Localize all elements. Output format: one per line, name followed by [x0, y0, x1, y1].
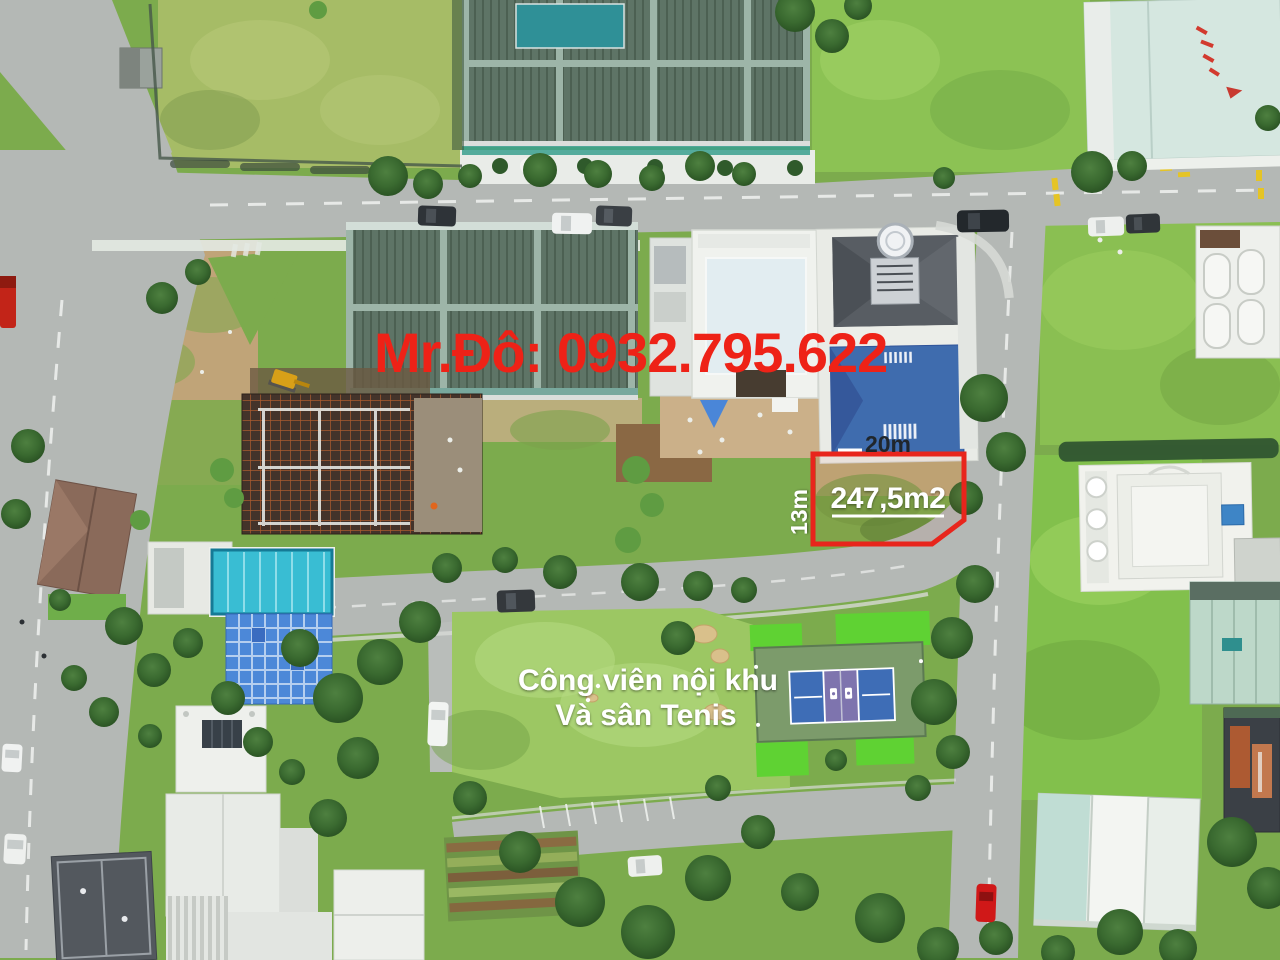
ac-unit: [249, 711, 255, 717]
warehouse-north: [452, 0, 810, 176]
tree-icon: [138, 724, 162, 748]
ac-box: [1222, 638, 1242, 651]
car-dark: [418, 205, 457, 226]
tree-icon: [905, 775, 931, 801]
dark-house: [51, 851, 157, 960]
grass-texture: [930, 70, 1070, 150]
ac-unit: [183, 711, 189, 717]
bush-icon: [224, 488, 244, 508]
worker-dot: [431, 503, 438, 510]
tree-icon: [368, 156, 408, 196]
tree-icon: [279, 759, 305, 785]
tree-icon: [933, 167, 955, 189]
plot-area-label: 247,5m2: [831, 482, 946, 515]
car-white: [1, 743, 22, 772]
tree-icon: [137, 653, 171, 687]
annex: [1234, 538, 1280, 585]
car-white: [1088, 216, 1125, 236]
tree-icon: [931, 617, 973, 659]
tree-icon: [61, 665, 87, 691]
tree-icon: [11, 429, 45, 463]
white-panel: [1088, 795, 1149, 929]
tree-icon: [543, 555, 577, 589]
grass-texture: [160, 90, 260, 150]
grass-texture: [190, 20, 330, 100]
tree-icon: [313, 673, 363, 723]
park-label-line1: Công viên nội khu: [518, 664, 778, 697]
tree-icon: [337, 737, 379, 779]
tree-icon: [1097, 909, 1143, 955]
wall-art: [1230, 726, 1250, 788]
turret-dome: [1087, 509, 1107, 529]
agent-watermark: Mr.Đô: 0932.795.622: [374, 321, 887, 384]
tree-icon: [1255, 105, 1280, 131]
roof-strip: [1224, 708, 1280, 718]
dark-section: [1200, 230, 1240, 248]
roof-inner: [1131, 485, 1208, 566]
tree-icon: [979, 921, 1013, 955]
turf-pad: [756, 741, 809, 777]
sidewalk-warehouse: [460, 150, 815, 184]
hedge-row: [1058, 438, 1278, 462]
tree-icon: [499, 831, 541, 873]
arched-building: [1196, 226, 1280, 358]
warehouse-roof: [462, 0, 810, 143]
shed-roof-half: [120, 48, 140, 88]
house-wing: [280, 828, 318, 916]
tree-icon: [243, 727, 273, 757]
tree-icon: [584, 160, 612, 188]
tree-icon: [936, 735, 970, 769]
tree-icon: [661, 621, 695, 655]
scene-svg: 20m 13m 247,5m2 Mr.Đô: 0932.795.622 Công…: [0, 0, 1280, 960]
tree-icon: [685, 855, 731, 901]
white-house-e: [228, 912, 332, 960]
tree-icon: [453, 781, 487, 815]
grass-texture: [510, 410, 610, 450]
terrace-clutter: [654, 292, 686, 322]
tree-icon: [621, 563, 659, 601]
suv-dark: [957, 210, 1009, 233]
tree-icon: [825, 749, 847, 771]
tree-icon: [399, 601, 441, 643]
tree-icon: [146, 282, 178, 314]
white-van: [772, 398, 798, 412]
tree-icon: [732, 162, 756, 186]
tree-icon: [173, 628, 203, 658]
tree-icon: [211, 681, 245, 715]
building-paleteal-topright: [1084, 0, 1280, 171]
dome-skylight: [878, 224, 913, 259]
tree-icon: [1117, 151, 1147, 181]
tree-icon: [555, 877, 605, 927]
tree-icon: [705, 775, 731, 801]
car-dark: [596, 205, 633, 226]
tree-icon: [281, 629, 319, 667]
tree-icon: [1207, 817, 1257, 867]
park-label-line2: Và sân Tenis: [555, 699, 736, 732]
roof-panel: [154, 548, 184, 608]
swimming-pool: [212, 550, 332, 614]
hedge-fence: [452, 0, 464, 150]
roof-edge: [1084, 2, 1114, 161]
tree-icon: [492, 547, 518, 573]
tree-icon: [105, 607, 143, 645]
bush-icon: [615, 527, 641, 553]
terrace-clutter: [654, 246, 686, 284]
rubble-debris: [458, 468, 463, 473]
tree-icon: [309, 799, 347, 837]
bush-icon: [622, 456, 650, 484]
motorbike-dot: [42, 654, 47, 659]
rubble-debris: [448, 438, 453, 443]
tree-icon: [413, 169, 443, 199]
tarp-cell: [252, 628, 265, 642]
tree-icon: [357, 639, 403, 685]
roof-clutter: [698, 234, 810, 248]
tree-icon: [960, 374, 1008, 422]
bush-icon: [640, 493, 664, 517]
bush-icon: [130, 510, 150, 530]
tree-icon: [1071, 151, 1113, 193]
tree-icon: [855, 893, 905, 943]
dark-strip: [1190, 582, 1280, 600]
rooftop-court: [516, 4, 624, 48]
bush-icon: [210, 458, 234, 482]
car-white: [552, 213, 592, 235]
car-red: [975, 884, 996, 923]
tree-icon: [1, 499, 31, 529]
aerial-photo: 20m 13m 247,5m2 Mr.Đô: 0932.795.622 Công…: [0, 0, 1280, 960]
tree-icon: [639, 165, 665, 191]
teal-panel: [1034, 793, 1091, 927]
grass-texture: [320, 75, 440, 145]
turret-dome: [1086, 477, 1106, 497]
plot-frontage-label: 20m: [865, 431, 911, 457]
car-dark: [497, 589, 536, 612]
tree-icon: [523, 153, 557, 187]
car-dark: [1126, 213, 1161, 233]
tree-icon: [815, 19, 849, 53]
motorbike-dot: [20, 620, 25, 625]
brown-roof-house: [37, 480, 136, 599]
car-white: [427, 702, 449, 747]
grass-texture: [1040, 250, 1200, 350]
teal-wall: [462, 146, 810, 155]
tree-icon: [432, 553, 462, 583]
tree-icon: [741, 815, 775, 849]
tree-icon: [911, 679, 957, 725]
striped-roof: [166, 896, 228, 960]
turret-dome: [1087, 541, 1107, 561]
car-white: [3, 833, 27, 864]
art-streak: [1258, 752, 1262, 792]
tree-icon: [458, 164, 482, 188]
concrete-deck: [414, 398, 482, 532]
tree-icon: [781, 873, 819, 911]
bush-icon: [309, 1, 327, 19]
car-white: [627, 855, 662, 877]
truck-red: [0, 276, 16, 328]
tree-icon: [685, 151, 715, 181]
plot-depth-label: 13m: [786, 489, 812, 535]
tree-icon: [89, 697, 119, 727]
tree-icon: [986, 432, 1026, 472]
tree-icon: [185, 259, 211, 285]
rooftop-pool: [1222, 505, 1244, 525]
tree-icon: [621, 905, 675, 959]
tree-icon: [49, 589, 71, 611]
tree-icon: [683, 571, 713, 601]
tree-icon: [731, 577, 757, 603]
tree-icon: [956, 565, 994, 603]
wall-strip: [346, 222, 638, 230]
